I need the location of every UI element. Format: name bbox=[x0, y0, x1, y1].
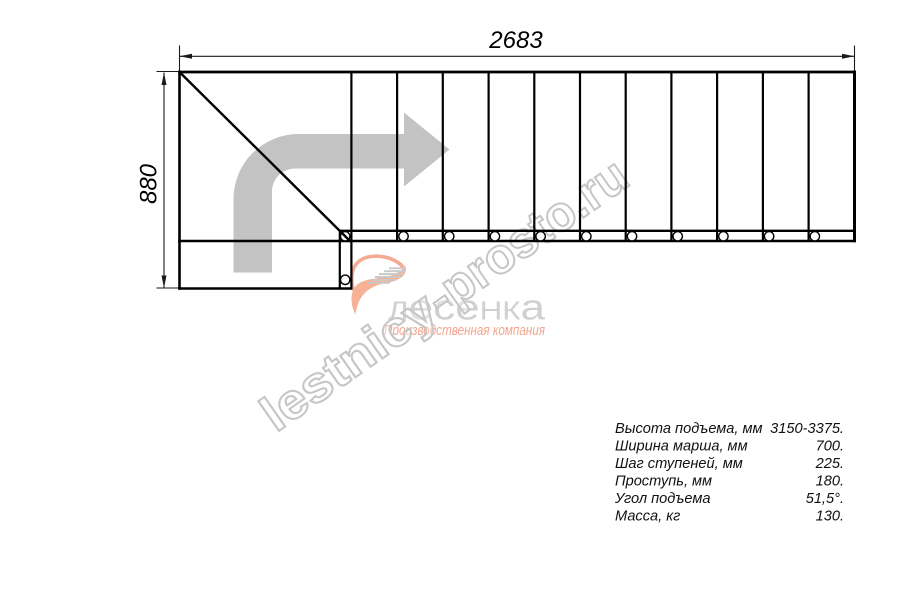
svg-text:Высота подъема, мм: Высота подъема, мм bbox=[615, 421, 763, 437]
svg-text:180.: 180. bbox=[816, 474, 844, 490]
svg-text:Масса, кг: Масса, кг bbox=[615, 509, 680, 525]
svg-text:225.: 225. bbox=[815, 456, 844, 472]
svg-text:130.: 130. bbox=[816, 509, 844, 525]
svg-text:Ширина марша, мм: Ширина марша, мм bbox=[615, 439, 748, 455]
svg-text:2683: 2683 bbox=[488, 27, 543, 54]
svg-text:700.: 700. bbox=[816, 439, 844, 455]
svg-text:880: 880 bbox=[136, 163, 163, 204]
svg-text:Проступь, мм: Проступь, мм bbox=[615, 474, 712, 490]
svg-text:Угол подъема: Угол подъема bbox=[614, 491, 710, 507]
svg-text:3150-3375.: 3150-3375. bbox=[770, 421, 844, 437]
svg-text:Шаг ступеней, мм: Шаг ступеней, мм bbox=[615, 456, 743, 472]
svg-text:51,5°.: 51,5°. bbox=[806, 491, 844, 507]
